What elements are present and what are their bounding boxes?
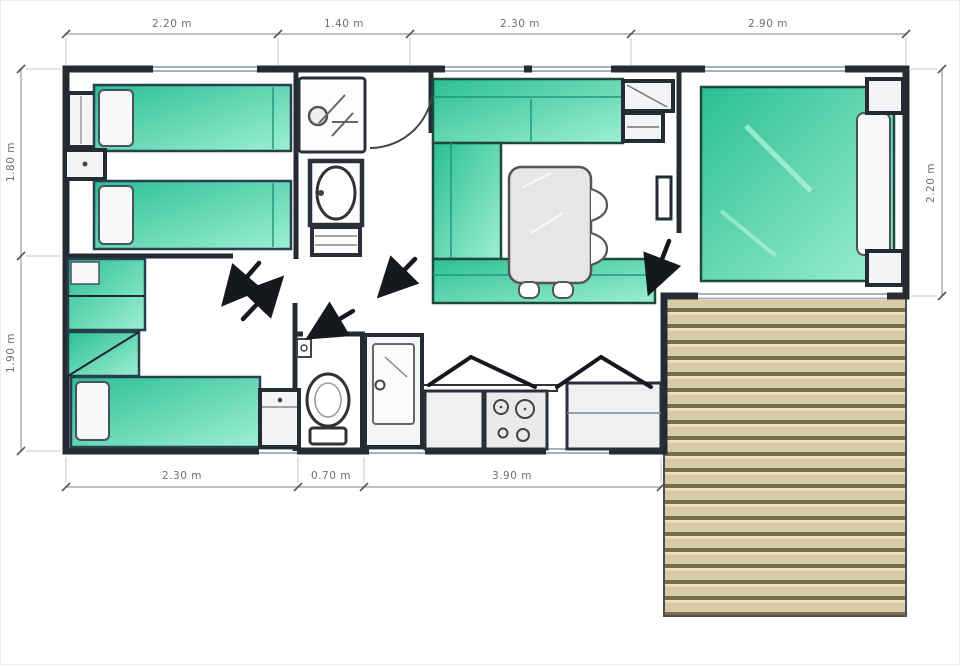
corner-wardrobe-top [867, 79, 903, 113]
dim-label-bottom-2: 0.70 m [311, 470, 351, 482]
deck-planks [664, 296, 906, 616]
dim-label-top-2: 1.40 m [324, 18, 364, 30]
bunk-unit [68, 259, 145, 330]
nightstand-handle [83, 162, 88, 167]
window-living-2 [532, 65, 611, 74]
faucet [318, 190, 324, 196]
deck-terrace [664, 296, 906, 616]
toilet-cistern [310, 428, 346, 444]
fridge [365, 335, 422, 447]
single-bed-3 [71, 377, 260, 447]
dim-label-right-1: 2.20 m [925, 163, 937, 203]
dim-label-top-1: 2.20 m [152, 18, 192, 30]
pillow [99, 186, 133, 244]
dim-label-bottom-3: 3.90 m [492, 470, 532, 482]
single-bed-1 [94, 85, 291, 151]
dimension-top: 2.20 m 1.40 m 2.30 m 2.90 m [62, 18, 910, 65]
washbasin [310, 161, 362, 225]
dim-label-bottom-1: 2.30 m [162, 470, 202, 482]
window-bedroom-small [153, 65, 257, 74]
dimension-bottom: 2.30 m 0.70 m 3.90 m [62, 457, 665, 491]
wardrobe-kids [260, 390, 299, 447]
floorplan-canvas: 2.20 m 1.40 m 2.30 m 2.90 m 2.30 m 0.70 … [1, 1, 960, 666]
dimension-right: 2.20 m [911, 65, 946, 300]
pillows [857, 113, 890, 255]
counter-unit-right [567, 383, 661, 449]
corner-wardrobe-bottom [867, 251, 903, 285]
shower-tray [299, 78, 365, 152]
counter-unit [425, 391, 483, 449]
pillow [99, 90, 133, 146]
toilet [307, 374, 349, 444]
dim-label-top-4: 2.90 m [748, 18, 788, 30]
bunk-unit-lower [68, 332, 139, 376]
dim-label-left-2: 1.90 m [5, 333, 17, 373]
bathroom-cabinet [312, 227, 360, 255]
window-living-1 [445, 65, 524, 74]
corner-basin [297, 339, 311, 357]
sliding-bay-door [698, 292, 887, 300]
dim-label-left-1: 1.80 m [5, 142, 17, 182]
single-bed-2 [94, 181, 291, 249]
pillow [76, 382, 109, 440]
fridge-handle [376, 381, 385, 390]
dimension-left: 1.80 m 1.90 m [5, 65, 61, 455]
table-foot [553, 282, 573, 298]
window-master-bedroom [705, 65, 845, 74]
master-bedroom [701, 79, 903, 285]
wall-unit [657, 177, 671, 219]
table-foot [519, 282, 539, 298]
dim-label-top-3: 2.30 m [500, 18, 540, 30]
floorplan-page: 2.20 m 1.40 m 2.30 m 2.90 m 2.30 m 0.70 … [0, 0, 960, 665]
hob [485, 391, 547, 449]
